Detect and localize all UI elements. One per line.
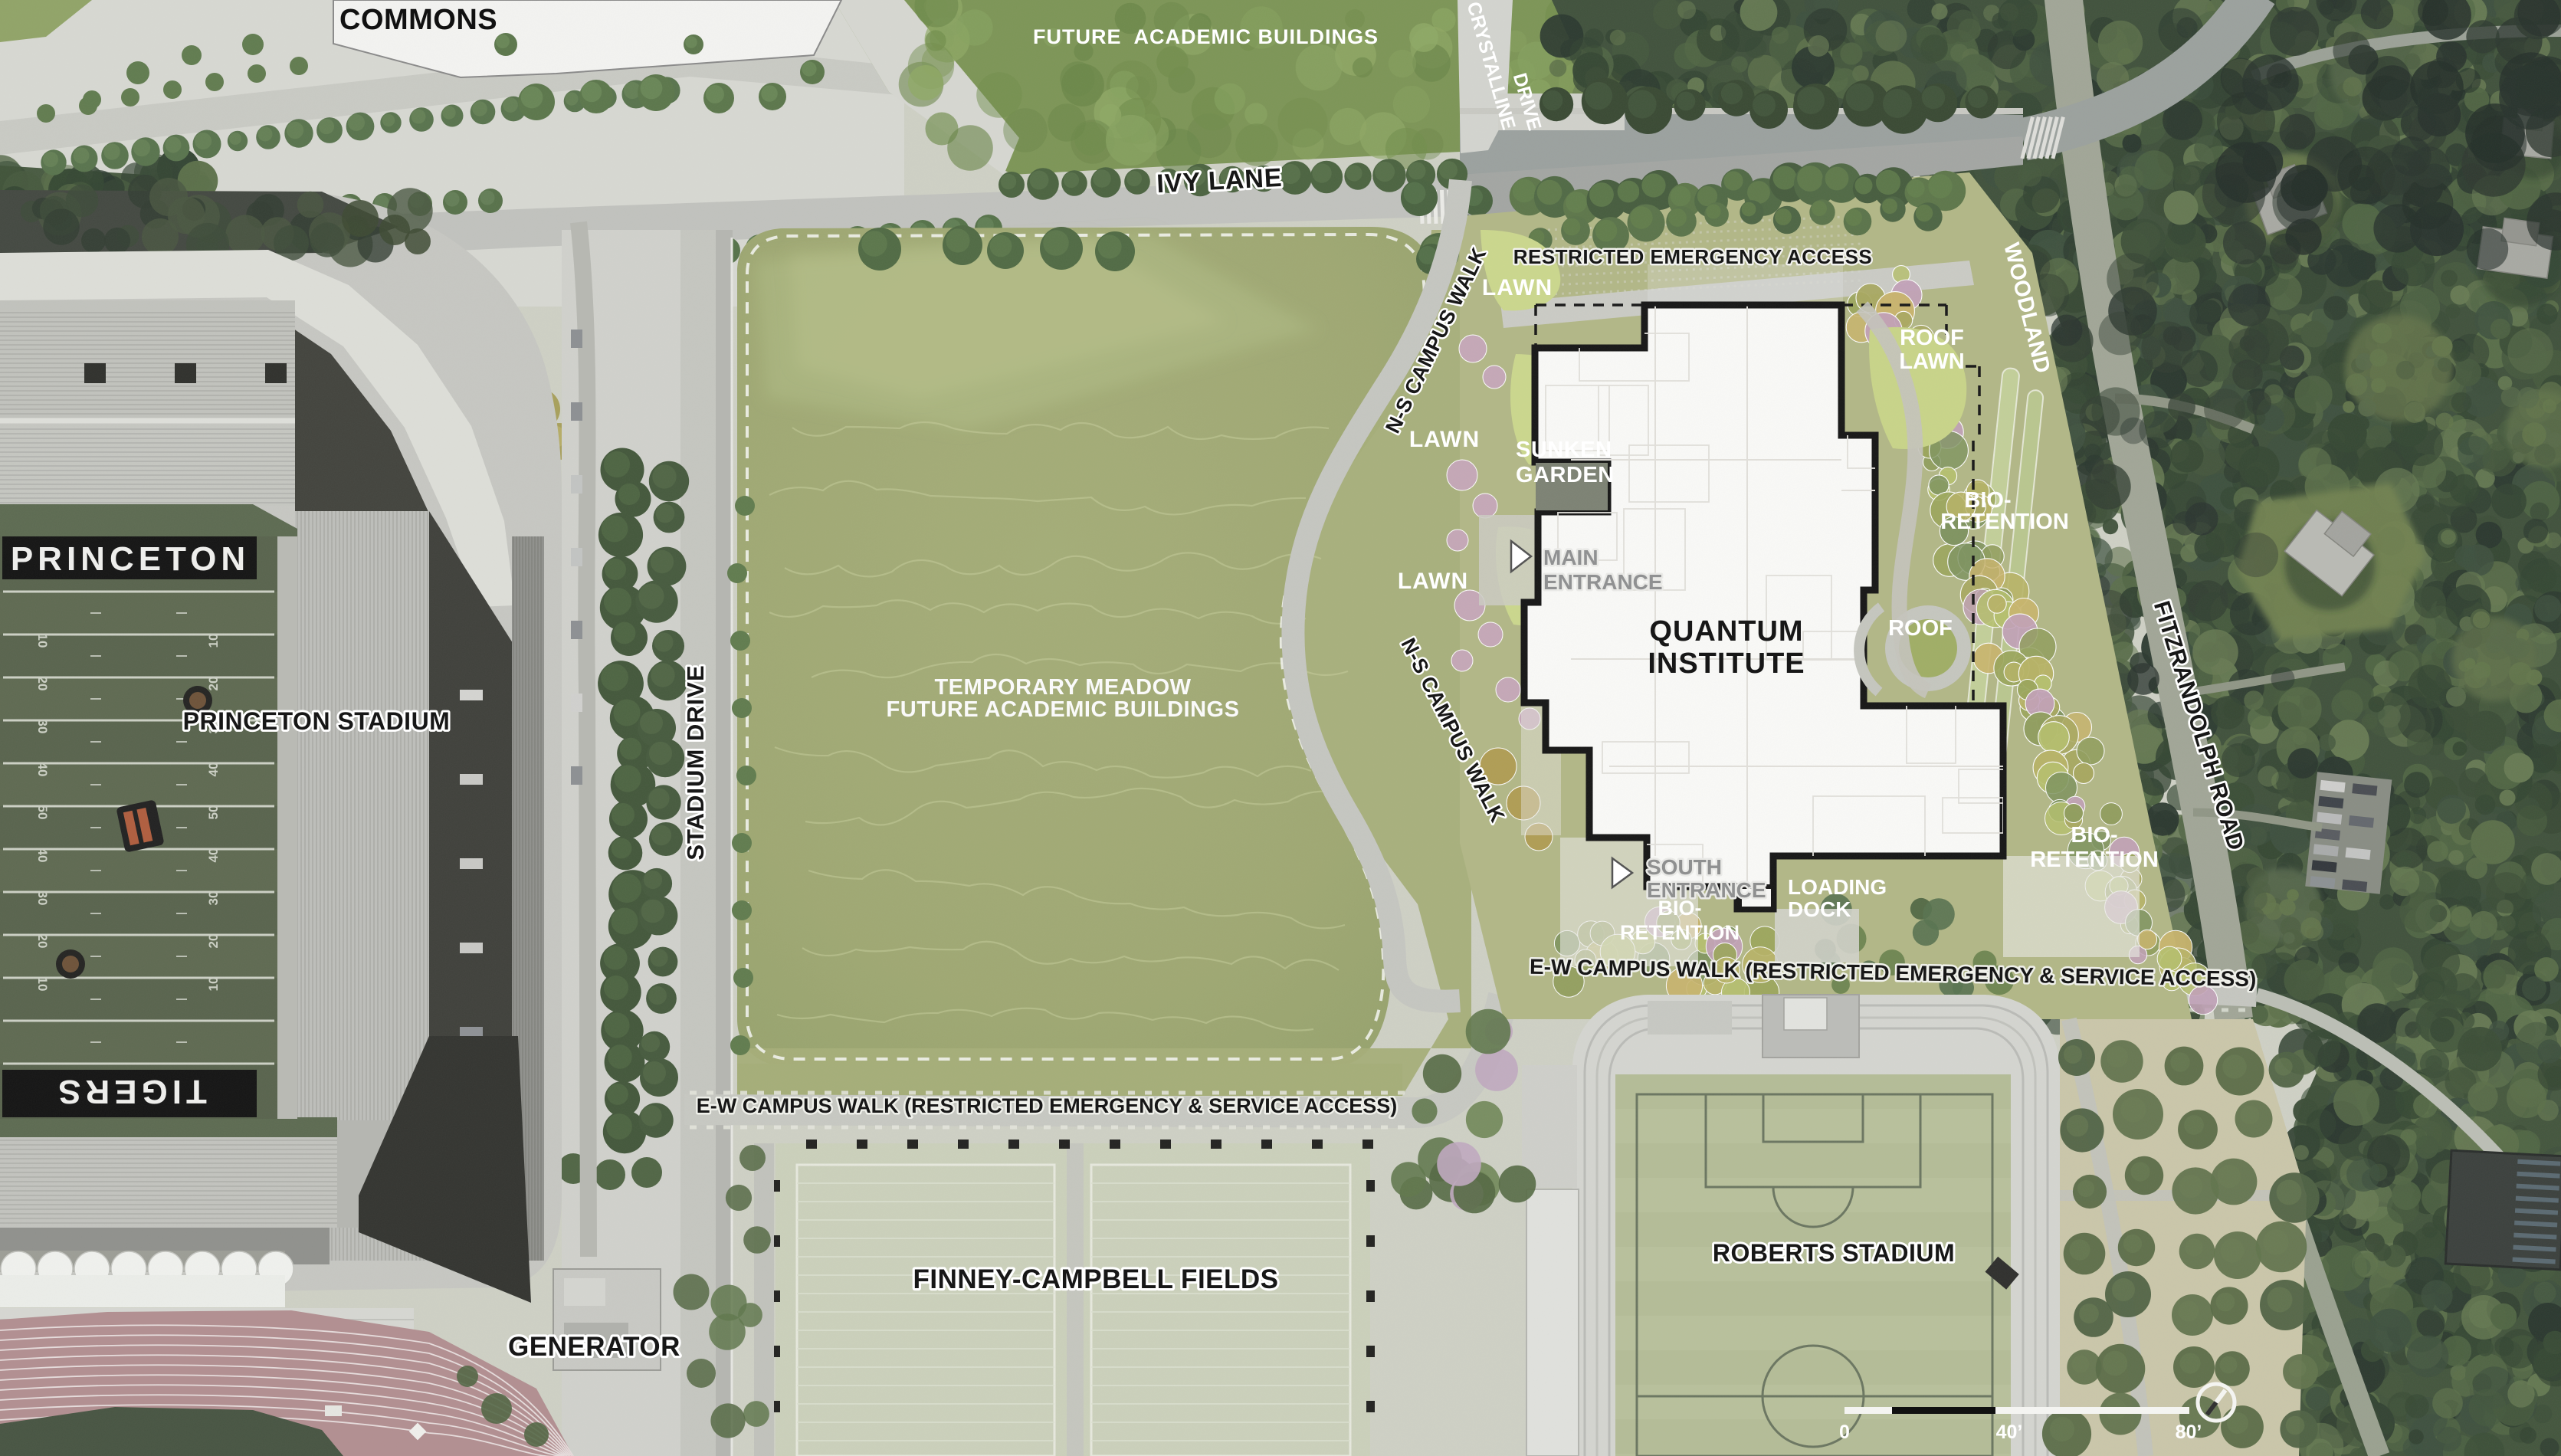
svg-text:LAWN: LAWN	[1899, 349, 1964, 374]
svg-text:SOUTH: SOUTH	[1647, 855, 1722, 879]
svg-text:ROOF: ROOF	[1900, 326, 1964, 350]
svg-text:LAWN: LAWN	[1409, 427, 1480, 452]
svg-text:COMMONS: COMMONS	[339, 4, 497, 36]
svg-text:MAIN: MAIN	[1543, 546, 1599, 569]
svg-text:RETENTION: RETENTION	[1940, 510, 2069, 534]
svg-text:RETENTION: RETENTION	[1620, 921, 1740, 944]
svg-text:ROBERTS STADIUM: ROBERTS STADIUM	[1713, 1239, 1955, 1267]
svg-text:RESTRICTED EMERGENCY ACCESS: RESTRICTED EMERGENCY ACCESS	[1513, 245, 1873, 268]
svg-text:QUANTUM: QUANTUM	[1649, 615, 1803, 648]
svg-text:LOADING: LOADING	[1788, 875, 1887, 899]
svg-text:GARDEN: GARDEN	[1516, 463, 1615, 487]
svg-text:0: 0	[1839, 1422, 1850, 1443]
svg-text:ROOF: ROOF	[1888, 616, 1953, 641]
svg-text:E-W CAMPUS WALK (RESTRICTED EM: E-W CAMPUS WALK (RESTRICTED EMERGENCY & …	[697, 1094, 1398, 1117]
svg-text:80’: 80’	[2176, 1422, 2202, 1443]
svg-text:FUTURE ACADEMIC BUILDINGS: FUTURE ACADEMIC BUILDINGS	[1033, 25, 1379, 48]
svg-text:RETENTION: RETENTION	[2030, 848, 2159, 872]
svg-text:GENERATOR: GENERATOR	[508, 1332, 680, 1362]
svg-text:INSTITUTE: INSTITUTE	[1648, 648, 1805, 680]
svg-text:ENTRANCE: ENTRANCE	[1543, 570, 1663, 594]
svg-text:40’: 40’	[1996, 1422, 2023, 1443]
svg-text:SUNKEN: SUNKEN	[1516, 438, 1612, 462]
svg-text:STADIUM DRIVE: STADIUM DRIVE	[682, 664, 709, 860]
svg-text:LAWN: LAWN	[1482, 275, 1553, 300]
svg-text:FINNEY-CAMPBELL FIELDS: FINNEY-CAMPBELL FIELDS	[913, 1264, 1278, 1294]
svg-text:PRINCETON STADIUM: PRINCETON STADIUM	[183, 707, 451, 735]
svg-text:BIO-: BIO-	[1658, 897, 1702, 920]
svg-text:LAWN: LAWN	[1398, 569, 1468, 594]
svg-text:DOCK: DOCK	[1788, 897, 1851, 921]
svg-text:BIO-: BIO-	[2071, 823, 2117, 848]
